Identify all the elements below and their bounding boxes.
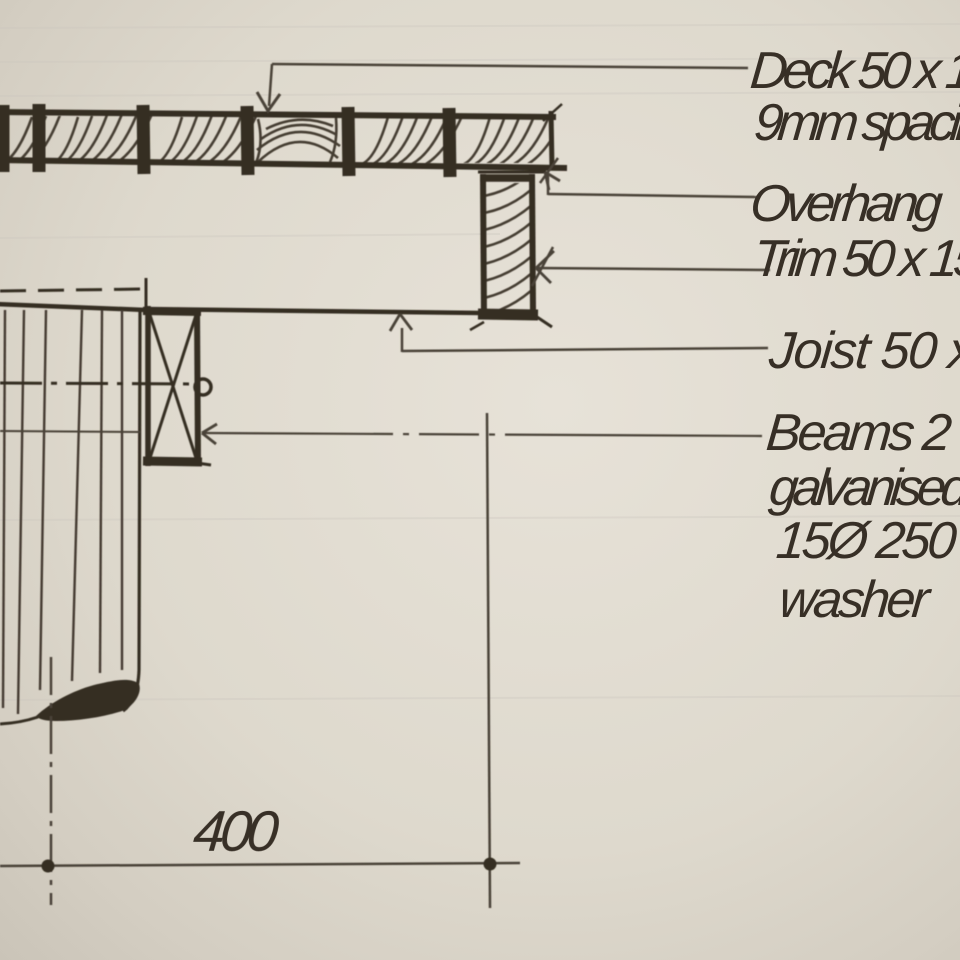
svg-text:9mm spacing: 9mm spacing xyxy=(752,94,960,152)
svg-text:washer: washer xyxy=(777,571,935,629)
svg-text:400: 400 xyxy=(191,800,282,864)
svg-text:15Ø 250: 15Ø 250 xyxy=(774,512,959,570)
svg-text:Deck 50 x 1: Deck 50 x 1 xyxy=(748,42,960,100)
svg-text:Overhang: Overhang xyxy=(748,175,945,233)
svg-text:galvanised b: galvanised b xyxy=(767,459,960,517)
svg-text:Trim 50 x 15: Trim 50 x 15 xyxy=(751,230,960,288)
svg-text:Beams 2: Beams 2 xyxy=(764,404,954,462)
svg-text:Joist 50 x: Joist 50 x xyxy=(766,322,960,380)
